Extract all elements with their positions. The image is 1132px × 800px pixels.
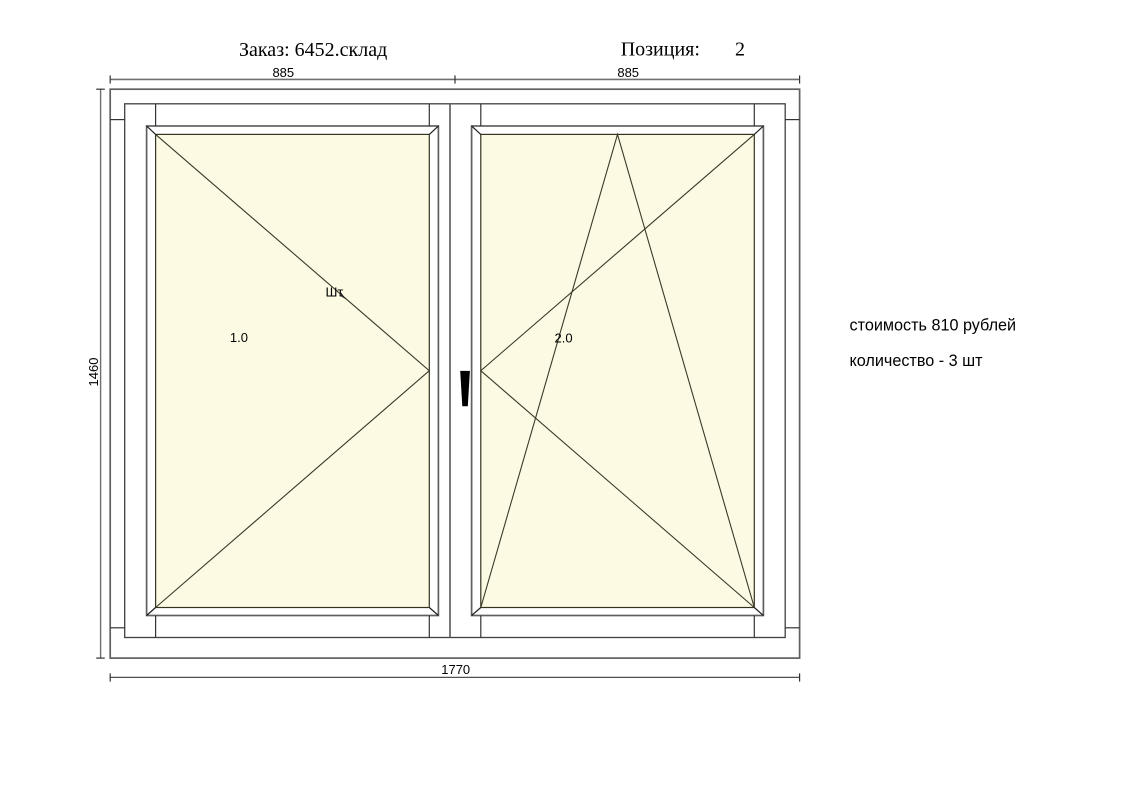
- svg-text:Заказ: 6452.склад: Заказ: 6452.склад: [239, 39, 387, 61]
- svg-text:Позиция:: Позиция:: [621, 39, 700, 61]
- svg-text:количество - 3 шт: количество - 3 шт: [850, 352, 984, 370]
- svg-text:885: 885: [272, 65, 294, 80]
- svg-text:1460: 1460: [86, 358, 101, 387]
- svg-text:стоимость 810 рублей: стоимость 810 рублей: [850, 317, 1017, 335]
- svg-text:1.0: 1.0: [230, 330, 248, 345]
- svg-text:2.0: 2.0: [555, 331, 573, 346]
- svg-text:885: 885: [617, 65, 639, 80]
- svg-text:2: 2: [735, 39, 745, 61]
- svg-text:Шт: Шт: [326, 285, 344, 300]
- svg-text:1770: 1770: [441, 662, 470, 677]
